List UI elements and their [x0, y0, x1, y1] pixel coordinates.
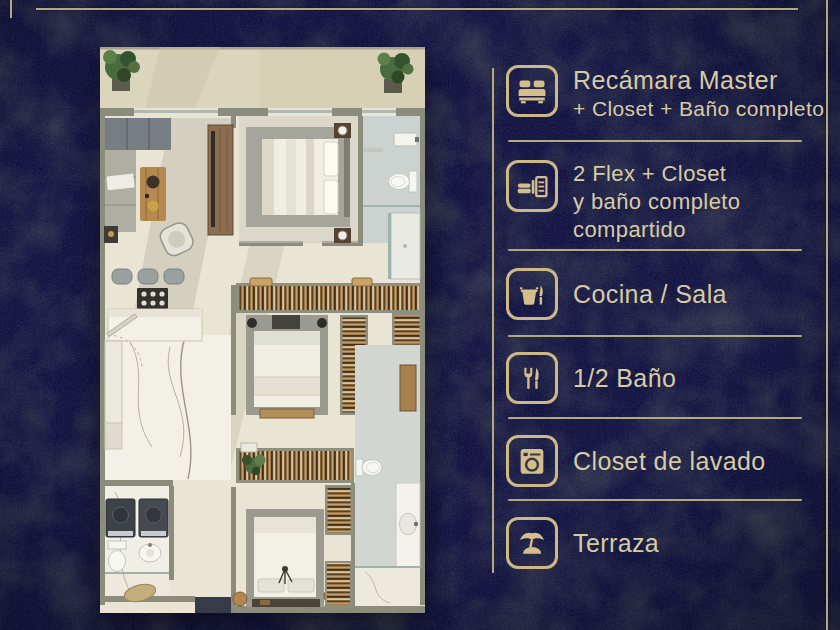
palm-terrace-icon — [506, 517, 558, 569]
washing-machine-icon — [506, 435, 558, 487]
stove — [137, 288, 168, 309]
shared-bathroom — [355, 345, 420, 606]
sink — [394, 133, 417, 146]
basket — [233, 592, 247, 606]
stool — [164, 269, 184, 284]
legend-text-line: Recámara Master — [573, 65, 824, 95]
closet-band — [236, 278, 422, 313]
legend-vertical-line — [492, 68, 494, 573]
legend-text-line: + Closet + Baño completo — [573, 95, 824, 122]
terrace — [100, 47, 425, 108]
bedroom-2 — [246, 315, 328, 418]
cutlery-icon — [506, 352, 558, 404]
toilet — [109, 551, 126, 572]
legend-divider — [508, 140, 802, 142]
floor-plan-image — [100, 47, 425, 613]
coffee-table — [140, 167, 166, 221]
sofa — [105, 118, 171, 150]
legend-item-closet-lavado: Closet de lavado — [506, 435, 766, 487]
legend-divider — [508, 249, 802, 251]
stool — [112, 269, 132, 284]
bench — [260, 409, 314, 418]
legend-divider — [508, 335, 802, 337]
kitchen-cabinets — [105, 341, 122, 425]
shower — [355, 568, 420, 606]
closet-band-2 — [236, 443, 354, 483]
master-bedroom — [239, 116, 358, 243]
legend-text-line: compartido — [573, 216, 740, 244]
kitchen-pot-icon — [506, 268, 558, 320]
infographic-page: Recámara Master + Closet + Baño completo… — [0, 0, 840, 630]
legend-item-flex-closet: 2 Flex + Closet y baño completo comparti… — [506, 160, 740, 244]
legend-text-line: Terraza — [573, 528, 659, 558]
legend-text-line: Cocina / Sala — [573, 279, 727, 309]
wood-shelf — [400, 365, 416, 411]
bed-closet-icon — [506, 160, 558, 212]
tv-console — [208, 125, 233, 235]
frame-left-tick — [10, 0, 12, 18]
legend-item-terraza: Terraza — [506, 517, 659, 569]
legend-divider — [508, 417, 802, 419]
legend-item-recamara-master: Recámara Master + Closet + Baño completo — [506, 65, 824, 122]
legend-text-line: Closet de lavado — [573, 446, 766, 476]
legend-item-medio-bano: 1/2 Baño — [506, 352, 676, 404]
legend-item-cocina-sala: Cocina / Sala — [506, 268, 727, 320]
bed-icon — [506, 65, 558, 117]
legend-divider — [508, 499, 802, 501]
stool — [138, 269, 158, 284]
legend-text-line: 1/2 Baño — [573, 363, 676, 393]
legend-text-line: 2 Flex + Closet — [573, 160, 740, 188]
frame-right-line — [826, 0, 828, 630]
legend-text-line: y baño completo — [573, 188, 740, 216]
frame-top-line — [36, 8, 798, 10]
